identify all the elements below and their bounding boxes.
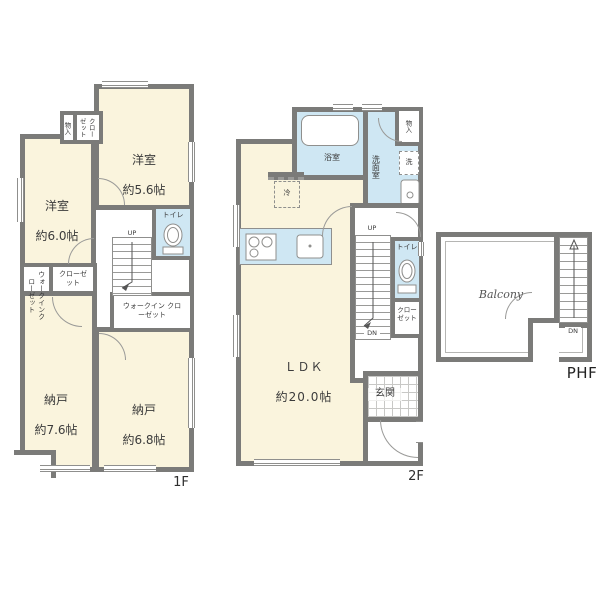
label-wic-left: ウォークインクローゼット: [26, 270, 46, 320]
window: [233, 205, 240, 247]
floor-label-1f: 1F: [168, 475, 194, 491]
floorplan: 洋室 約5.6帖 洋室 約6.0帖 納戸 約7.6帖 納戸 約6.8帖 物入 ク…: [0, 0, 600, 600]
window: [40, 465, 90, 472]
window: [233, 315, 240, 357]
stove-icon: [245, 233, 277, 261]
room-name: ＬＤＫ: [284, 360, 323, 374]
floor-label-2f: 2F: [402, 469, 430, 485]
floor-label-phf: PHF: [564, 364, 600, 383]
room-name: 洋室: [132, 153, 156, 167]
label-genkan: 玄関: [368, 388, 402, 401]
label-nando-7-6: 納戸 約7.6帖: [16, 378, 96, 438]
room-name: 納戸: [44, 393, 68, 407]
stairs-2f-arrow: [357, 238, 389, 338]
label-yoshitsu-6-0: 洋室 約6.0帖: [18, 184, 96, 244]
room-name: 納戸: [132, 403, 156, 417]
stairs-phf-arrow: [562, 238, 586, 322]
label-nando-6-8: 納戸 約6.8帖: [104, 388, 184, 448]
label-closet-2f: クローゼット: [395, 306, 419, 322]
room-name: 洋室: [45, 199, 69, 213]
label-wic-center: ウォークイン クローゼット: [122, 302, 182, 320]
room-size: 約7.6帖: [34, 423, 77, 437]
window: [188, 358, 195, 428]
label-ldk: ＬＤＫ 約20.0帖: [256, 345, 352, 405]
label-dn-2f: DN: [364, 329, 380, 337]
label-washer: 洗: [402, 158, 416, 167]
window: [362, 104, 382, 111]
bathtub-icon: [301, 115, 359, 146]
label-storage-2f: 物入: [404, 114, 411, 138]
room-size: 約5.6帖: [122, 183, 165, 197]
label-bath: 浴室: [312, 153, 352, 163]
window: [188, 142, 195, 182]
room-size: 約6.8帖: [122, 433, 165, 447]
notch-1f: [14, 450, 56, 478]
stairs-1f-arrow: [114, 240, 150, 294]
room-size: 約20.0帖: [276, 390, 333, 404]
label-closet-mid: クローゼット: [56, 270, 90, 288]
room-size: 約6.0帖: [35, 229, 78, 243]
label-dn-phf: DN: [565, 327, 581, 335]
label-up-1f: UP: [124, 229, 140, 237]
label-storage-small-1f: 物入: [63, 116, 70, 140]
label-washroom: 洗面室: [371, 147, 379, 187]
sink-icon: [296, 234, 324, 259]
window: [104, 465, 156, 472]
label-toilet-1f: トイレ: [158, 211, 188, 220]
label-toilet-2f: トイレ: [394, 243, 420, 252]
label-balcony: Balcony: [462, 288, 540, 302]
label-closet-top: クローゼット: [77, 116, 95, 140]
kitchen-wall-stub: [268, 172, 304, 180]
label-up-2f: UP: [364, 224, 380, 232]
window: [333, 104, 353, 111]
label-yoshitsu-5-6: 洋室 約5.6帖: [104, 138, 184, 198]
window: [254, 459, 340, 466]
toilet-icon: [160, 222, 186, 256]
window: [102, 81, 148, 88]
washbasin-icon: [400, 179, 420, 206]
phf-landing-notch: [528, 318, 559, 362]
label-fridge: 冷: [280, 189, 294, 198]
toilet-icon: [396, 255, 418, 297]
